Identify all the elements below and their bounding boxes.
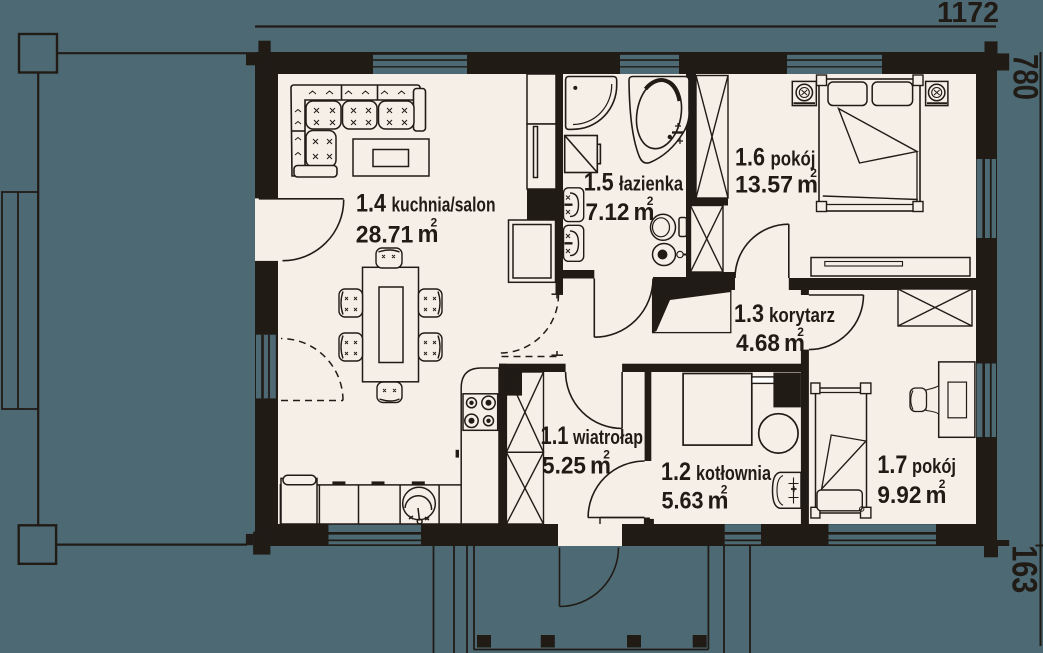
svg-text:łazienka: łazienka bbox=[619, 173, 683, 196]
svg-text:kotłownia: kotłownia bbox=[696, 462, 771, 485]
svg-text:wiatrołap: wiatrołap bbox=[572, 426, 643, 449]
svg-text:2: 2 bbox=[431, 216, 438, 230]
svg-text:1172: 1172 bbox=[937, 0, 999, 29]
svg-text:1.2: 1.2 bbox=[661, 459, 691, 486]
svg-text:1.3: 1.3 bbox=[734, 301, 764, 328]
svg-text:1.5: 1.5 bbox=[584, 170, 614, 197]
svg-text:5.25: 5.25 bbox=[542, 454, 586, 480]
svg-text:2: 2 bbox=[721, 483, 728, 497]
svg-text:163: 163 bbox=[1005, 545, 1043, 593]
svg-text:9.92: 9.92 bbox=[877, 483, 921, 509]
svg-text:korytarz: korytarz bbox=[769, 304, 835, 327]
svg-text:1.7: 1.7 bbox=[877, 452, 907, 479]
svg-text:780: 780 bbox=[1006, 54, 1043, 100]
svg-text:4.68: 4.68 bbox=[736, 331, 780, 357]
svg-text:1.6: 1.6 bbox=[735, 145, 765, 172]
svg-text:28.71: 28.71 bbox=[356, 223, 414, 249]
svg-text:13.57: 13.57 bbox=[735, 172, 793, 198]
svg-text:5.63: 5.63 bbox=[662, 489, 704, 515]
svg-text:pokój: pokój bbox=[771, 148, 816, 171]
svg-text:2: 2 bbox=[797, 325, 804, 339]
svg-text:kuchnia/salon: kuchnia/salon bbox=[392, 194, 496, 217]
svg-text:pokój: pokój bbox=[912, 455, 956, 478]
svg-text:2: 2 bbox=[647, 194, 654, 208]
svg-text:7.12: 7.12 bbox=[586, 200, 630, 226]
svg-text:2: 2 bbox=[810, 166, 817, 180]
svg-text:2: 2 bbox=[939, 477, 946, 491]
svg-text:1.4: 1.4 bbox=[356, 191, 386, 218]
svg-text:1.1: 1.1 bbox=[541, 423, 569, 450]
svg-text:2: 2 bbox=[603, 448, 610, 462]
